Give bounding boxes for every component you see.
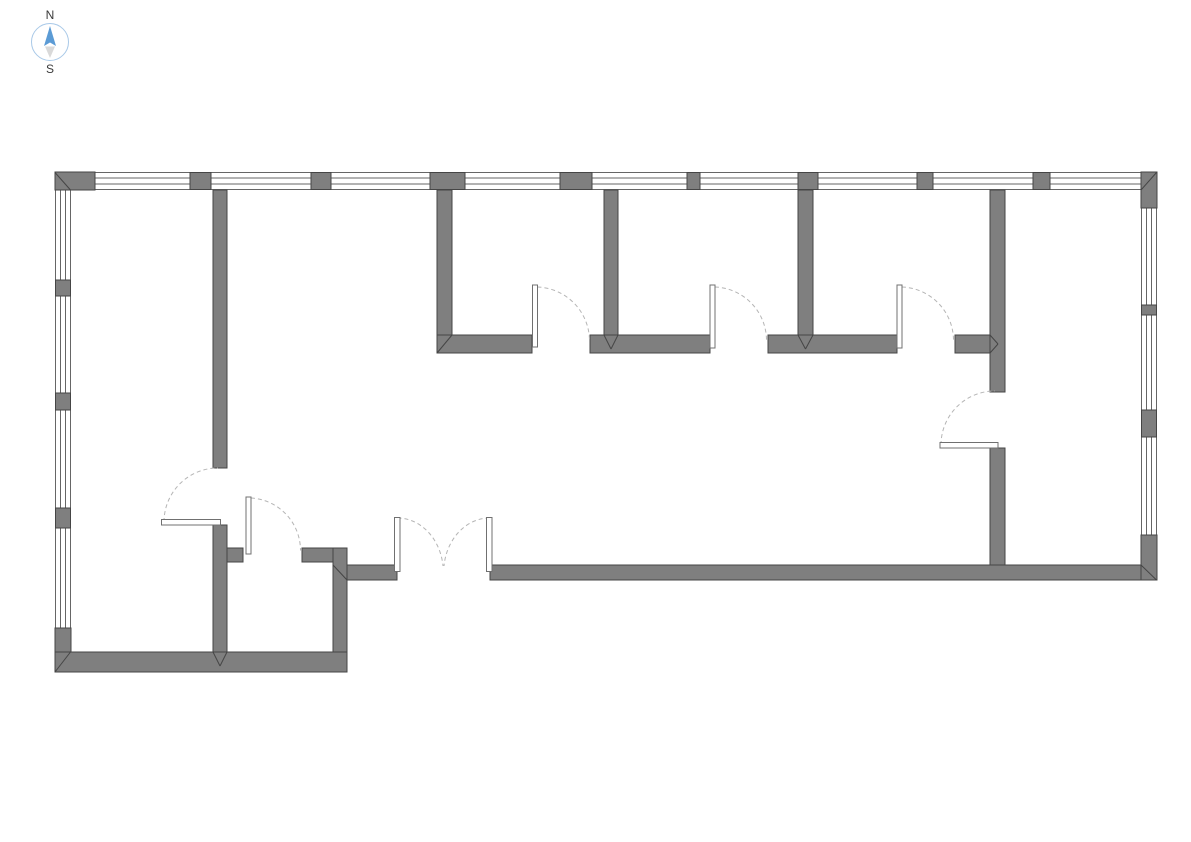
bottom-wall-right (490, 565, 1141, 580)
entrance-double-door-right-swing-arc (444, 518, 490, 566)
bottom-wall-mid (347, 565, 397, 580)
room-divider-2 (604, 190, 618, 336)
room3-door-swing-arc (902, 287, 954, 341)
room-divider-1 (437, 190, 452, 336)
closet-door-leaf (246, 497, 251, 554)
rooms-front-wall-c (768, 335, 897, 353)
right-partition-upper (990, 190, 1005, 392)
room2-door-leaf (710, 285, 715, 348)
closet-top-wall-a (227, 548, 243, 562)
entrance-double-door-right-leaf (487, 518, 493, 572)
window-pier-north-3 (430, 173, 465, 190)
window-pier-north-6 (798, 173, 818, 190)
window-pier-west-3 (56, 508, 71, 528)
window-pier-north-8 (1033, 173, 1050, 190)
window-pier-west-2 (56, 393, 71, 410)
floor-plan-page: N S (0, 0, 1191, 842)
window-pier-west-1 (56, 280, 71, 296)
closet-door-swing-arc (251, 498, 301, 551)
left-room-door-swing-arc (164, 468, 218, 522)
left-room-partition-upper (213, 190, 227, 468)
room2-door-swing-arc (715, 287, 767, 341)
room-divider-3 (798, 190, 813, 336)
closet-right-wall (333, 548, 347, 653)
window-band-north (56, 173, 1157, 190)
room1-door-swing-arc (538, 287, 590, 341)
bottom-wall-left (55, 652, 347, 672)
window-pier-east-1 (1142, 305, 1157, 315)
closet-top-wall-b (302, 548, 333, 562)
entrance-double-door-left-swing-arc (398, 518, 444, 566)
window-pier-north-5 (687, 173, 700, 190)
window-pier-east-2 (1142, 410, 1157, 437)
window-band-east (1142, 205, 1157, 537)
floor-plan (0, 0, 1191, 842)
right-partition-lower (990, 448, 1005, 566)
wall-corner-northeast (1141, 172, 1157, 208)
window-pier-north-7 (917, 173, 933, 190)
window-pier-north-4 (560, 173, 592, 190)
room1-door-leaf (533, 285, 538, 347)
entrance-double-door-left-leaf (395, 518, 401, 572)
rooms-front-wall-a (437, 335, 532, 353)
left-room-door-leaf (162, 520, 221, 526)
left-room-partition-lower (213, 525, 227, 652)
wall-corner-northwest (55, 172, 95, 190)
rooms-front-wall-d (955, 335, 990, 353)
hall-east-door-swing-arc (941, 391, 995, 445)
window-pier-north-1 (190, 173, 211, 190)
hall-east-door-leaf (940, 443, 998, 449)
window-pier-north-2 (311, 173, 331, 190)
room3-door-leaf (897, 285, 902, 348)
